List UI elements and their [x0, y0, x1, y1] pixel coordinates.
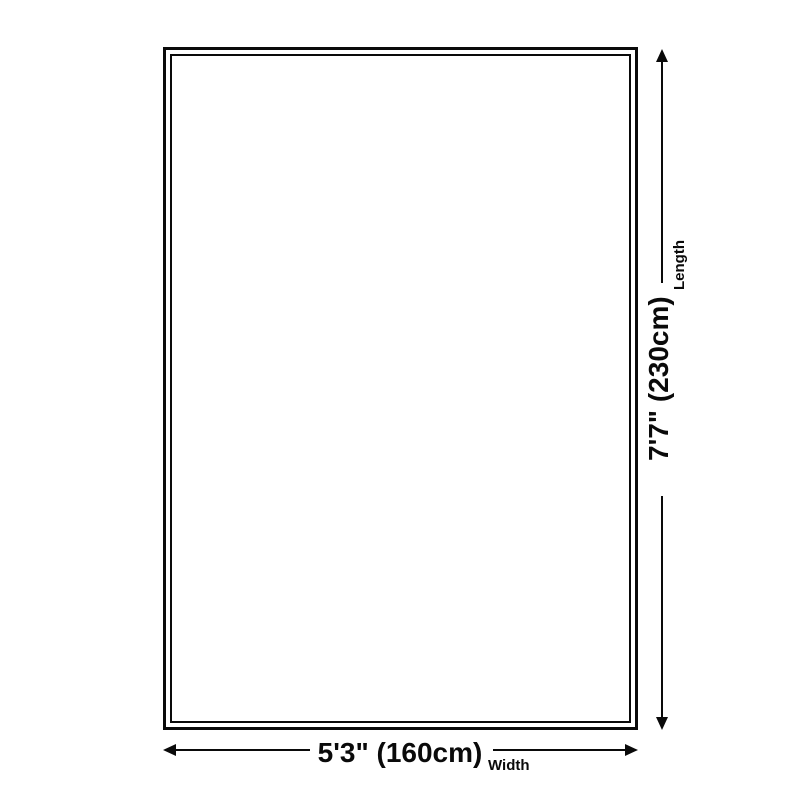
length-value-label: 7'7" (230cm) — [643, 296, 675, 461]
rug-outline — [163, 47, 638, 730]
arrow-left-icon — [163, 744, 176, 756]
arrow-right-icon — [625, 744, 638, 756]
rug-size-diagram: Length 7'7" (230cm) 5'3" (160cm) Width — [0, 0, 800, 800]
width-value-label: 5'3" (160cm) — [318, 737, 483, 769]
width-dimension-line-right — [493, 749, 625, 751]
length-dimension-line-bottom — [661, 496, 663, 718]
width-dimension-line-left — [176, 749, 310, 751]
arrow-down-icon — [656, 717, 668, 730]
length-axis-label: Length — [671, 240, 689, 290]
rug-inner-border — [170, 54, 631, 723]
width-axis-label: Width — [488, 757, 530, 775]
length-dimension-line-top — [661, 61, 663, 283]
